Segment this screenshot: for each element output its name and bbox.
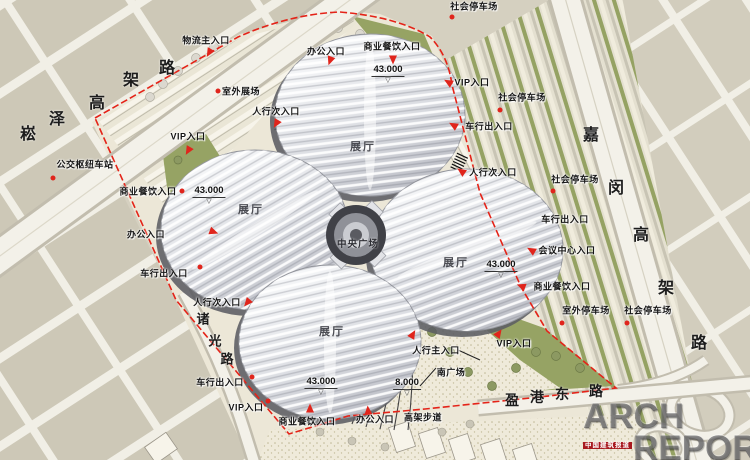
location-dot-icon [560,321,565,326]
map-label: 商业餐饮入口 [533,280,590,293]
map-label: 中央广场 [337,236,379,250]
map-label: 车行出入口 [196,376,244,389]
map-label: 人行主入口 [412,344,460,357]
road-name-char: 架 [658,274,674,298]
map-label: 社会停车场 [498,91,546,104]
map-label: 人行次入口 [469,166,517,179]
road-name-char: 盈 [505,390,519,410]
map-label: VIP入口 [228,401,263,414]
map-label: 室外展场 [222,85,260,98]
map-label: VIP入口 [496,337,531,350]
watermark-line2: REPORT [633,433,750,460]
road-name-char: 闵 [608,174,624,198]
map-label: 社会停车场 [624,304,672,317]
entrance-arrow-icon [407,328,418,340]
entrance-arrow-icon [515,281,526,292]
location-dot-icon [180,189,185,194]
map-label: 商业餐饮入口 [119,185,176,198]
entrance-arrow-icon [389,56,397,65]
watermark-subtitle: 中国建筑报道 [583,442,632,450]
map-label: 南广场 [437,366,466,379]
road-name-char: 崧 [20,120,36,144]
map-label: 社会停车场 [551,173,599,186]
map-label: 人行次入口 [193,296,241,309]
road-name-char: 高 [633,221,649,245]
entrance-arrow-icon [203,47,214,59]
map-label: 展厅 [350,138,376,154]
location-dot-icon [551,189,556,194]
watermark: ARCH 中国建筑报道 REPORT [583,401,750,460]
elevation-marker: 43.000▽ [304,377,337,396]
map-label: 车行出入口 [541,213,589,226]
road-name-char: 泽 [49,105,65,129]
entrance-arrow-icon [270,118,281,130]
road-name-char: 光 [208,331,221,350]
map-label: 展厅 [319,323,345,339]
elevation-marker: 43.000▽ [371,65,404,84]
map-label: 车行出入口 [465,120,513,133]
map-label: 展厅 [238,201,264,217]
entrance-arrow-icon [364,405,373,415]
elevation-marker: 43.000▽ [192,186,225,205]
location-dot-icon [498,108,503,113]
location-dot-icon [266,399,271,404]
road-name-char: 港 [530,387,544,407]
location-dot-icon [51,176,56,181]
road-name-char: 路 [220,349,233,368]
entrance-arrow-icon [442,76,454,87]
entrance-arrow-icon [525,244,537,255]
road-name-char: 路 [691,329,707,353]
elevation-marker: 8.000▽ [393,378,421,397]
map-label: 人行次入口 [252,105,300,118]
entrance-arrow-icon [208,227,219,238]
location-dot-icon [216,89,221,94]
entrance-arrow-icon [241,297,253,309]
map-label: 展厅 [443,254,469,270]
map-label: VIP入口 [170,130,205,143]
entrance-arrow-icon [455,165,467,177]
location-dot-icon [625,321,630,326]
entrance-arrow-icon [325,55,336,66]
watermark-line1: ARCH [583,401,750,433]
road-name-char: 嘉 [583,121,599,145]
road-name-char: 架 [123,66,139,90]
map-label: 公交枢纽车站 [56,158,113,171]
road-name-char: 东 [555,384,569,404]
site-plan: 物流主入口社会停车场办公入口商业餐饮入口VIP入口室外展场社会停车场人行次入口车… [0,0,750,460]
map-label: 高架步道 [404,411,442,424]
entrance-arrow-icon [306,404,314,413]
location-dot-icon [198,265,203,270]
map-label: 办公入口 [127,228,165,241]
map-label: VIP入口 [454,76,489,89]
map-label: 商业餐饮入口 [278,415,335,428]
location-dot-icon [450,15,455,20]
location-dot-icon [250,375,255,380]
map-annotations: 物流主入口社会停车场办公入口商业餐饮入口VIP入口室外展场社会停车场人行次入口车… [0,0,750,460]
map-label: 车行出入口 [140,267,188,280]
map-label: 办公入口 [307,45,345,58]
map-label: 商业餐饮入口 [363,40,420,53]
map-label: 社会停车场 [450,0,498,13]
elevation-marker: 43.000▽ [484,260,517,279]
map-label: 办公入口 [356,413,394,426]
map-label: 物流主入口 [182,34,230,47]
map-label: 室外停车场 [562,304,610,317]
road-name-char: 路 [159,54,175,78]
road-name-char: 高 [89,89,105,113]
road-name-char: 诸 [196,309,209,328]
entrance-arrow-icon [447,119,459,130]
entrance-arrow-icon [182,145,193,157]
map-label: 会议中心入口 [538,244,595,257]
